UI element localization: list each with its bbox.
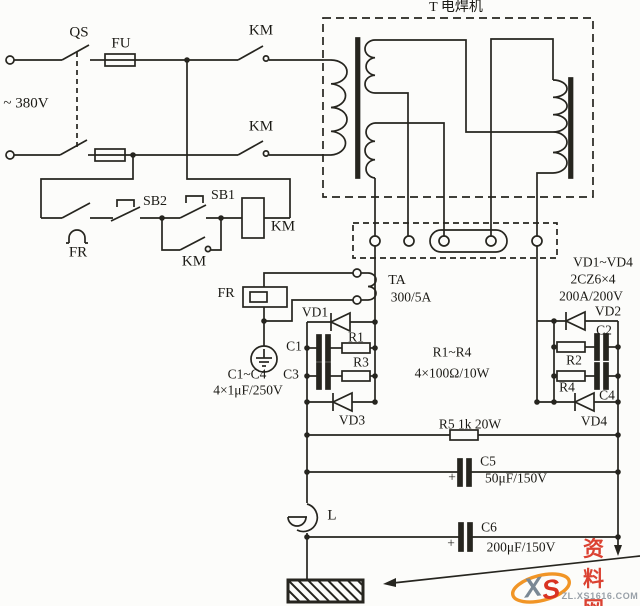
label-sb1: SB1 — [211, 189, 235, 203]
fuse-fu-1 — [105, 54, 135, 66]
label-vd1: VD1 — [302, 305, 328, 319]
label-vd3: VD3 — [339, 413, 365, 427]
label-c5-value: 50μF/150V — [485, 471, 547, 485]
label-c6: C6 — [481, 520, 497, 534]
terminal-strip — [353, 223, 557, 258]
label-diode-note-1: VD1~VD4 — [573, 255, 633, 269]
workpiece-electrode — [288, 580, 363, 602]
km-coil — [242, 198, 264, 238]
label-sb2: SB2 — [143, 195, 167, 209]
label-fr-heater: FR — [217, 287, 234, 301]
label-transformer-title: T 电焊机 — [429, 1, 483, 15]
label-c1: C1 — [286, 339, 302, 353]
label-diode-note-3: 200A/200V — [559, 289, 623, 303]
earth-symbol — [251, 321, 277, 372]
label-r5: R5 1k 20W — [439, 417, 501, 431]
km-main-contact-2 — [238, 141, 269, 156]
label-r3: R3 — [353, 355, 369, 369]
label-r2: R2 — [566, 353, 582, 367]
watermark-url: ZL.XS1616.COM — [562, 591, 639, 601]
label-supply-voltage: ~ 380V — [3, 97, 48, 112]
cap-c6 — [307, 523, 618, 551]
sb1-start-button — [180, 196, 206, 218]
label-qs: QS — [69, 26, 88, 41]
inductor-l — [288, 504, 317, 532]
label-vd2: VD2 — [595, 304, 621, 318]
label-r4: R4 — [559, 380, 575, 394]
label-c-note-1: C1~C4 — [228, 367, 267, 381]
label-fu: FU — [111, 37, 130, 52]
current-transformer-ta — [353, 246, 376, 402]
label-c5: C5 — [480, 454, 496, 468]
label-km-top: KM — [249, 24, 273, 39]
label-ta-ratio: 300/5A — [391, 290, 432, 304]
label-c2: C2 — [596, 323, 612, 337]
label-vd4: VD4 — [581, 414, 607, 428]
fuse-fu-2 — [95, 149, 125, 161]
label-r1: R1 — [348, 330, 364, 344]
welding-machine-schematic: QS FU KM KM ~ 380V SB2 SB1 KM KM FR FR T… — [0, 0, 640, 606]
label-r-note-1: R1~R4 — [433, 345, 472, 359]
cap-c5 — [307, 459, 618, 486]
label-fr-contact: FR — [69, 246, 87, 261]
label-ta: TA — [388, 274, 406, 288]
label-c3: C3 — [283, 367, 299, 381]
label-km-aux: KM — [182, 255, 206, 270]
label-c5-plus: + — [448, 470, 456, 484]
schematic-canvas — [0, 0, 640, 606]
label-c4: C4 — [599, 388, 615, 402]
resistor-r5 — [307, 430, 618, 440]
label-l: L — [327, 509, 336, 524]
electrode-arrowhead — [383, 578, 396, 587]
diode-vd3 — [307, 393, 375, 411]
fr-thermal-contact — [62, 203, 90, 243]
label-r-note-2: 4×100Ω/10W — [415, 366, 490, 380]
fr-heater — [243, 273, 353, 321]
label-diode-note-2: 2CZ6×4 — [570, 272, 615, 286]
label-km-coil: KM — [271, 220, 295, 235]
label-c6-value: 200μF/150V — [487, 540, 556, 554]
supply-terminal-2 — [6, 151, 14, 159]
supply-terminal-1 — [6, 56, 14, 64]
label-km-mid: KM — [249, 120, 273, 135]
km-aux-contact — [162, 218, 221, 252]
welding-transformer — [323, 18, 593, 236]
label-c6-plus: + — [447, 536, 455, 550]
sb2-stop-button — [111, 200, 140, 221]
km-main-contact-1 — [238, 46, 269, 61]
label-c-note-2: 4×1μF/250V — [213, 383, 283, 397]
resistor-r2-cap-c2 — [554, 334, 618, 360]
qs-switch — [60, 45, 89, 155]
